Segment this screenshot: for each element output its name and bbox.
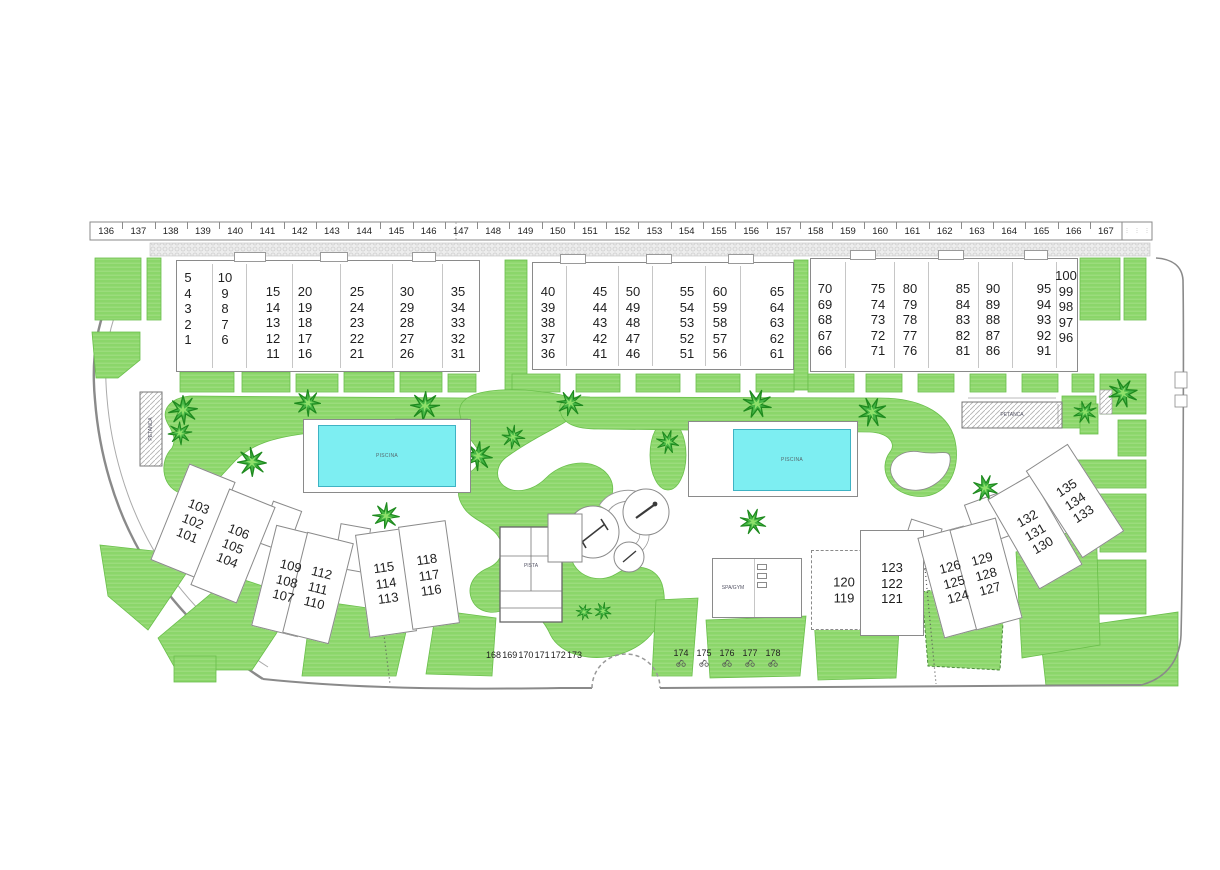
petanca-strip-label: PETANCA — [147, 406, 155, 452]
unit-number: 83 — [946, 312, 980, 328]
unit-number: 13 — [256, 315, 290, 331]
unit-number: 31 — [441, 346, 475, 362]
unit-number: 69 — [808, 297, 842, 313]
parking-tick — [1025, 222, 1026, 229]
parking-bay-number: 160 — [864, 222, 896, 240]
parking-bay-number: 158 — [800, 222, 832, 240]
unit-column: 109876 — [208, 270, 242, 348]
unit-number: 33 — [441, 315, 475, 331]
unit-number: 78 — [893, 312, 927, 328]
unit-column: 4039383736 — [531, 284, 565, 362]
unit-number: 121 — [881, 591, 903, 607]
parking-bay-number: 154 — [671, 222, 703, 240]
unit-group: 123122121 — [881, 560, 903, 607]
unit-number: 64 — [760, 300, 794, 316]
parking-bay-number: 138 — [155, 222, 187, 240]
unit-number: 68 — [808, 312, 842, 328]
stair-bump — [646, 254, 672, 264]
unit-number: 44 — [583, 300, 617, 316]
parking-bay-number: 174 — [670, 648, 692, 658]
unit-number: 2 — [171, 317, 205, 333]
parking-tick — [993, 222, 994, 229]
parking-bay-number: 137 — [122, 222, 154, 240]
unit-number: 82 — [946, 328, 980, 344]
parking-tick — [606, 222, 607, 229]
unit-number: 40 — [531, 284, 565, 300]
parking-bay-number: 167 — [1090, 222, 1122, 240]
unit-number: 22 — [340, 331, 374, 347]
stair-bump — [320, 252, 348, 262]
parking-tick — [896, 222, 897, 229]
unit-number: 61 — [760, 346, 794, 362]
moto-bay: 176 — [716, 648, 738, 667]
parking-tick — [122, 222, 123, 229]
unit-number: 81 — [946, 343, 980, 359]
stair-bump — [728, 254, 754, 264]
unit-number: 23 — [340, 315, 374, 331]
unit-number: 86 — [976, 343, 1010, 359]
unit-number: 42 — [583, 331, 617, 347]
block-divider — [652, 266, 653, 366]
stair-bump — [1024, 250, 1048, 260]
unit-number: 89 — [976, 297, 1010, 313]
parking-tick — [832, 222, 833, 229]
pool-left-label: PISCINA — [376, 453, 398, 459]
moto-icon — [716, 658, 738, 667]
parking-tick — [187, 222, 188, 229]
moto-icon — [739, 658, 761, 667]
parking-bay-number: 177 — [739, 648, 761, 658]
parking-tick — [542, 222, 543, 229]
unit-column: 5554535251 — [670, 284, 704, 362]
unit-number: 80 — [893, 281, 927, 297]
moto-bay: 175 — [693, 648, 715, 667]
unit-number: 113 — [377, 589, 400, 607]
unit-number: 32 — [441, 331, 475, 347]
parking-tick — [509, 222, 510, 229]
stair-bump — [234, 252, 266, 262]
unit-number: 28 — [390, 315, 424, 331]
parking-tick — [1058, 222, 1059, 229]
parking-tick — [251, 222, 252, 229]
unit-number: 74 — [861, 297, 895, 313]
parking-bay-number: 163 — [961, 222, 993, 240]
parking-bay-number: 168 — [486, 650, 501, 660]
parking-bay-number: 175 — [693, 648, 715, 658]
block-divider — [1012, 262, 1013, 368]
parking-tick — [735, 222, 736, 229]
parking-bay-number: 136 — [90, 222, 122, 240]
parking-bay-number: 149 — [509, 222, 541, 240]
pool-right: PISCINA — [733, 429, 851, 491]
unit-number: 10 — [208, 270, 242, 286]
unit-number: 99 — [1049, 284, 1083, 300]
unit-number: 7 — [208, 317, 242, 333]
parking-bay-number: 170 — [518, 650, 533, 660]
parking-bay-number: 162 — [929, 222, 961, 240]
unit-number: 8 — [208, 301, 242, 317]
unit-number: 60 — [703, 284, 737, 300]
moto-slot: ⋮ — [1132, 222, 1142, 240]
unit-number: 36 — [531, 346, 565, 362]
tennis-court-label: PISTA — [514, 562, 548, 570]
parking-bay-number: 150 — [542, 222, 574, 240]
unit-column: 6059585756 — [703, 284, 737, 362]
parking-bay-number: 172 — [551, 650, 566, 660]
unit-number: 62 — [760, 331, 794, 347]
unit-number: 67 — [808, 328, 842, 344]
unit-number: 123 — [881, 560, 903, 576]
unit-number: 26 — [390, 346, 424, 362]
unit-number: 66 — [808, 343, 842, 359]
parking-bay-number: 141 — [251, 222, 283, 240]
unit-number: 73 — [861, 312, 895, 328]
parking-bay-number: 173 — [567, 650, 582, 660]
unit-number: 43 — [583, 315, 617, 331]
unit-number: 71 — [861, 343, 895, 359]
driveway-arc — [592, 654, 660, 688]
unit-column: 2524232221 — [340, 284, 374, 362]
moto-icon — [693, 658, 715, 667]
parking-tick — [864, 222, 865, 229]
parking-bay-number: 164 — [993, 222, 1025, 240]
moto-icon — [762, 658, 784, 667]
unit-number: 85 — [946, 281, 980, 297]
parking-tick — [1090, 222, 1091, 229]
unit-number: 51 — [670, 346, 704, 362]
unit-number: 100 — [1049, 268, 1083, 284]
parking-bottom-left: 168169170171172173 — [486, 650, 582, 660]
unit-number: 45 — [583, 284, 617, 300]
unit-column: 8584838281 — [946, 281, 980, 359]
parking-bay-number: 148 — [477, 222, 509, 240]
parking-tick — [961, 222, 962, 229]
unit-column: 54321 — [171, 270, 205, 348]
unit-number: 53 — [670, 315, 704, 331]
unit-number: 48 — [616, 315, 650, 331]
unit-number: 24 — [340, 300, 374, 316]
unit-number: 77 — [893, 328, 927, 344]
parking-tick — [219, 222, 220, 229]
unit-number: 11 — [256, 346, 290, 362]
unit-number: 70 — [808, 281, 842, 297]
unit-number: 50 — [616, 284, 650, 300]
parking-tick — [380, 222, 381, 229]
moto-bay: 174 — [670, 648, 692, 667]
stair-bump — [412, 252, 436, 262]
unit-number: 9 — [208, 286, 242, 302]
moto-bay: 177 — [739, 648, 761, 667]
petanca-label: PETANCA — [962, 411, 1062, 419]
parking-tick — [767, 222, 768, 229]
unit-number: 87 — [976, 328, 1010, 344]
parking-bay-number: 155 — [703, 222, 735, 240]
parking-bay-number: 146 — [413, 222, 445, 240]
pool-left: PISCINA — [318, 425, 456, 487]
unit-number: 37 — [531, 331, 565, 347]
unit-number: 27 — [390, 331, 424, 347]
unit-number: 14 — [256, 300, 290, 316]
parking-tick — [316, 222, 317, 229]
moto-slot: ⋮ — [1122, 222, 1132, 240]
unit-number: 20 — [288, 284, 322, 300]
block-divider — [566, 266, 567, 366]
unit-column: 4544434241 — [583, 284, 617, 362]
unit-number: 17 — [288, 331, 322, 347]
unit-number: 63 — [760, 315, 794, 331]
parking-tick — [574, 222, 575, 229]
parking-tick — [638, 222, 639, 229]
parking-tick — [413, 222, 414, 229]
parking-bay-number: 152 — [606, 222, 638, 240]
unit-number: 29 — [390, 300, 424, 316]
unit-number: 119 — [833, 590, 855, 606]
parking-bay-number: 139 — [187, 222, 219, 240]
unit-number: 4 — [171, 286, 205, 302]
unit-number: 34 — [441, 300, 475, 316]
unit-number: 56 — [703, 346, 737, 362]
parking-bay-number: 143 — [316, 222, 348, 240]
spa-fixture — [757, 573, 767, 579]
unit-number: 58 — [703, 315, 737, 331]
parking-tick — [477, 222, 478, 229]
unit-number: 19 — [288, 300, 322, 316]
parking-bay-number: 147 — [445, 222, 477, 240]
unit-column: 5049484746 — [616, 284, 650, 362]
unit-number: 41 — [583, 346, 617, 362]
unit-column: 10099989796 — [1049, 268, 1083, 346]
unit-number: 25 — [340, 284, 374, 300]
parking-tick — [703, 222, 704, 229]
stair-bump — [560, 254, 586, 264]
tree-icon — [737, 506, 770, 539]
stair-bump — [938, 250, 964, 260]
pool-right-label: PISCINA — [781, 457, 803, 463]
unit-number: 6 — [208, 332, 242, 348]
unit-number: 30 — [390, 284, 424, 300]
unit-number: 84 — [946, 297, 980, 313]
moto-icon — [670, 658, 692, 667]
block-36-65 — [532, 262, 794, 370]
unit-column: 7574737271 — [861, 281, 895, 359]
parking-tick — [671, 222, 672, 229]
unit-number: 116 — [420, 581, 443, 599]
parking-bay-number: 171 — [535, 650, 550, 660]
parking-tick — [445, 222, 446, 229]
unit-number: 59 — [703, 300, 737, 316]
unit-number: 90 — [976, 281, 1010, 297]
unit-number: 75 — [861, 281, 895, 297]
unit-number: 18 — [288, 315, 322, 331]
unit-column: 6564636261 — [760, 284, 794, 362]
moto-bay: 178 — [762, 648, 784, 667]
unit-number: 88 — [976, 312, 1010, 328]
parking-tick — [284, 222, 285, 229]
unit-number: 57 — [703, 331, 737, 347]
parking-bay-number: 156 — [735, 222, 767, 240]
unit-number: 98 — [1049, 299, 1083, 315]
parking-tick — [800, 222, 801, 229]
unit-number: 79 — [893, 297, 927, 313]
parking-bay-number: 176 — [716, 648, 738, 658]
unit-group: 120119 — [833, 575, 855, 606]
unit-column: 2019181716 — [288, 284, 322, 362]
stair-bump — [850, 250, 876, 260]
parking-bay-number: 144 — [348, 222, 380, 240]
unit-number: 16 — [288, 346, 322, 362]
unit-number: 12 — [256, 331, 290, 347]
unit-number: 65 — [760, 284, 794, 300]
unit-number: 54 — [670, 300, 704, 316]
unit-number: 1 — [171, 332, 205, 348]
parking-bay-number: 166 — [1058, 222, 1090, 240]
unit-number: 97 — [1049, 315, 1083, 331]
unit-number: 46 — [616, 346, 650, 362]
block-divider — [740, 266, 741, 366]
unit-number: 35 — [441, 284, 475, 300]
parking-bay-number: 178 — [762, 648, 784, 658]
unit-number: 49 — [616, 300, 650, 316]
parking-bay-number: 151 — [574, 222, 606, 240]
unit-number: 96 — [1049, 330, 1083, 346]
unit-number: 38 — [531, 315, 565, 331]
block-divider — [845, 262, 846, 368]
unit-number: 39 — [531, 300, 565, 316]
unit-column: 7069686766 — [808, 281, 842, 359]
parking-bay-number: 140 — [219, 222, 251, 240]
parking-bay-number: 161 — [896, 222, 928, 240]
parking-bay-number: 165 — [1025, 222, 1057, 240]
unit-number: 55 — [670, 284, 704, 300]
unit-number: 5 — [171, 270, 205, 286]
unit-number: 52 — [670, 331, 704, 347]
parking-bay-number: 142 — [284, 222, 316, 240]
block-divider — [246, 264, 247, 368]
parking-tick — [348, 222, 349, 229]
moto-slot: ⋮ — [1142, 222, 1152, 240]
parking-bay-number: 159 — [832, 222, 864, 240]
unit-column: 3534333231 — [441, 284, 475, 362]
block-divider — [928, 262, 929, 368]
unit-column: 1514131211 — [256, 284, 290, 362]
unit-number: 120 — [833, 575, 855, 591]
parking-tick — [155, 222, 156, 229]
unit-number: 3 — [171, 301, 205, 317]
unit-number: 76 — [893, 343, 927, 359]
spa-label: SPA/GYM — [714, 584, 752, 592]
parking-bay-number: 157 — [767, 222, 799, 240]
parking-tick — [929, 222, 930, 229]
site-plan-graphics — [0, 0, 1220, 870]
spa-fixture — [757, 564, 767, 570]
unit-column: 9089888786 — [976, 281, 1010, 359]
spa-fixture — [757, 582, 767, 588]
unit-number: 15 — [256, 284, 290, 300]
site-plan: PISCINA PISCINA PISTA SPA/GYM PETANCA PE… — [0, 0, 1220, 870]
unit-column: 8079787776 — [893, 281, 927, 359]
unit-number: 72 — [861, 328, 895, 344]
unit-number: 47 — [616, 331, 650, 347]
unit-column: 3029282726 — [390, 284, 424, 362]
parking-bay-number: 169 — [502, 650, 517, 660]
parking-bay-number: 153 — [638, 222, 670, 240]
parking-bay-number: 145 — [380, 222, 412, 240]
unit-number: 122 — [881, 575, 903, 591]
unit-number: 21 — [340, 346, 374, 362]
